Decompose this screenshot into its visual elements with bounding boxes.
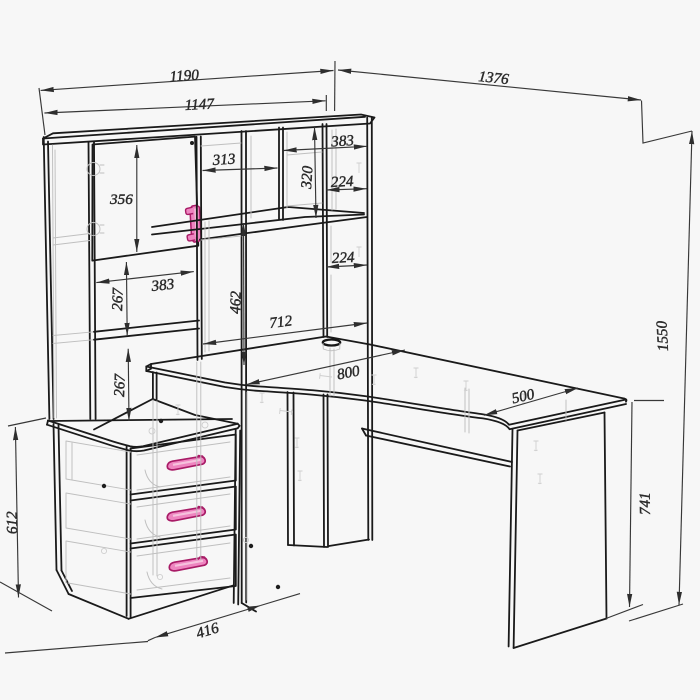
svg-text:741: 741 [637, 492, 654, 515]
svg-text:1147: 1147 [184, 95, 216, 114]
svg-text:1550: 1550 [653, 320, 672, 352]
svg-text:356: 356 [109, 191, 133, 208]
svg-text:320: 320 [298, 165, 317, 190]
svg-text:1190: 1190 [169, 66, 200, 85]
svg-text:1376: 1376 [478, 68, 510, 88]
svg-text:224: 224 [330, 173, 354, 191]
svg-text:267: 267 [109, 286, 127, 311]
svg-text:383: 383 [150, 276, 176, 295]
svg-text:712: 712 [268, 312, 293, 332]
svg-text:462: 462 [227, 290, 245, 314]
svg-text:383: 383 [330, 132, 355, 151]
svg-text:612: 612 [4, 511, 21, 534]
svg-text:224: 224 [331, 249, 355, 267]
svg-text:267: 267 [111, 372, 129, 397]
svg-text:313: 313 [211, 150, 236, 169]
